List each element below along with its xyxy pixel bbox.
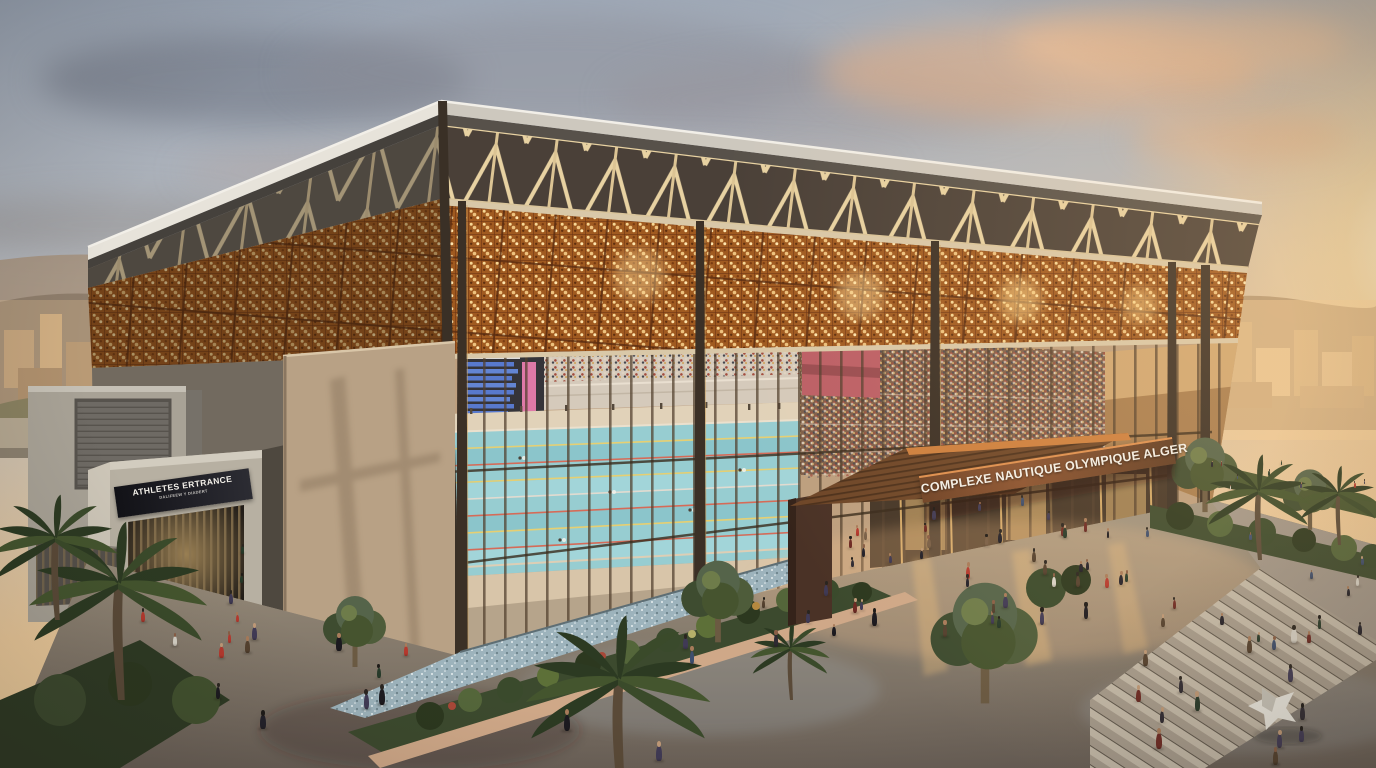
aquatic-complex-rendering: COMPLEXE NAUTIQUE OLYMPIQUE ALGER ATHLET… xyxy=(0,0,1376,768)
scene-artwork xyxy=(0,0,1376,768)
